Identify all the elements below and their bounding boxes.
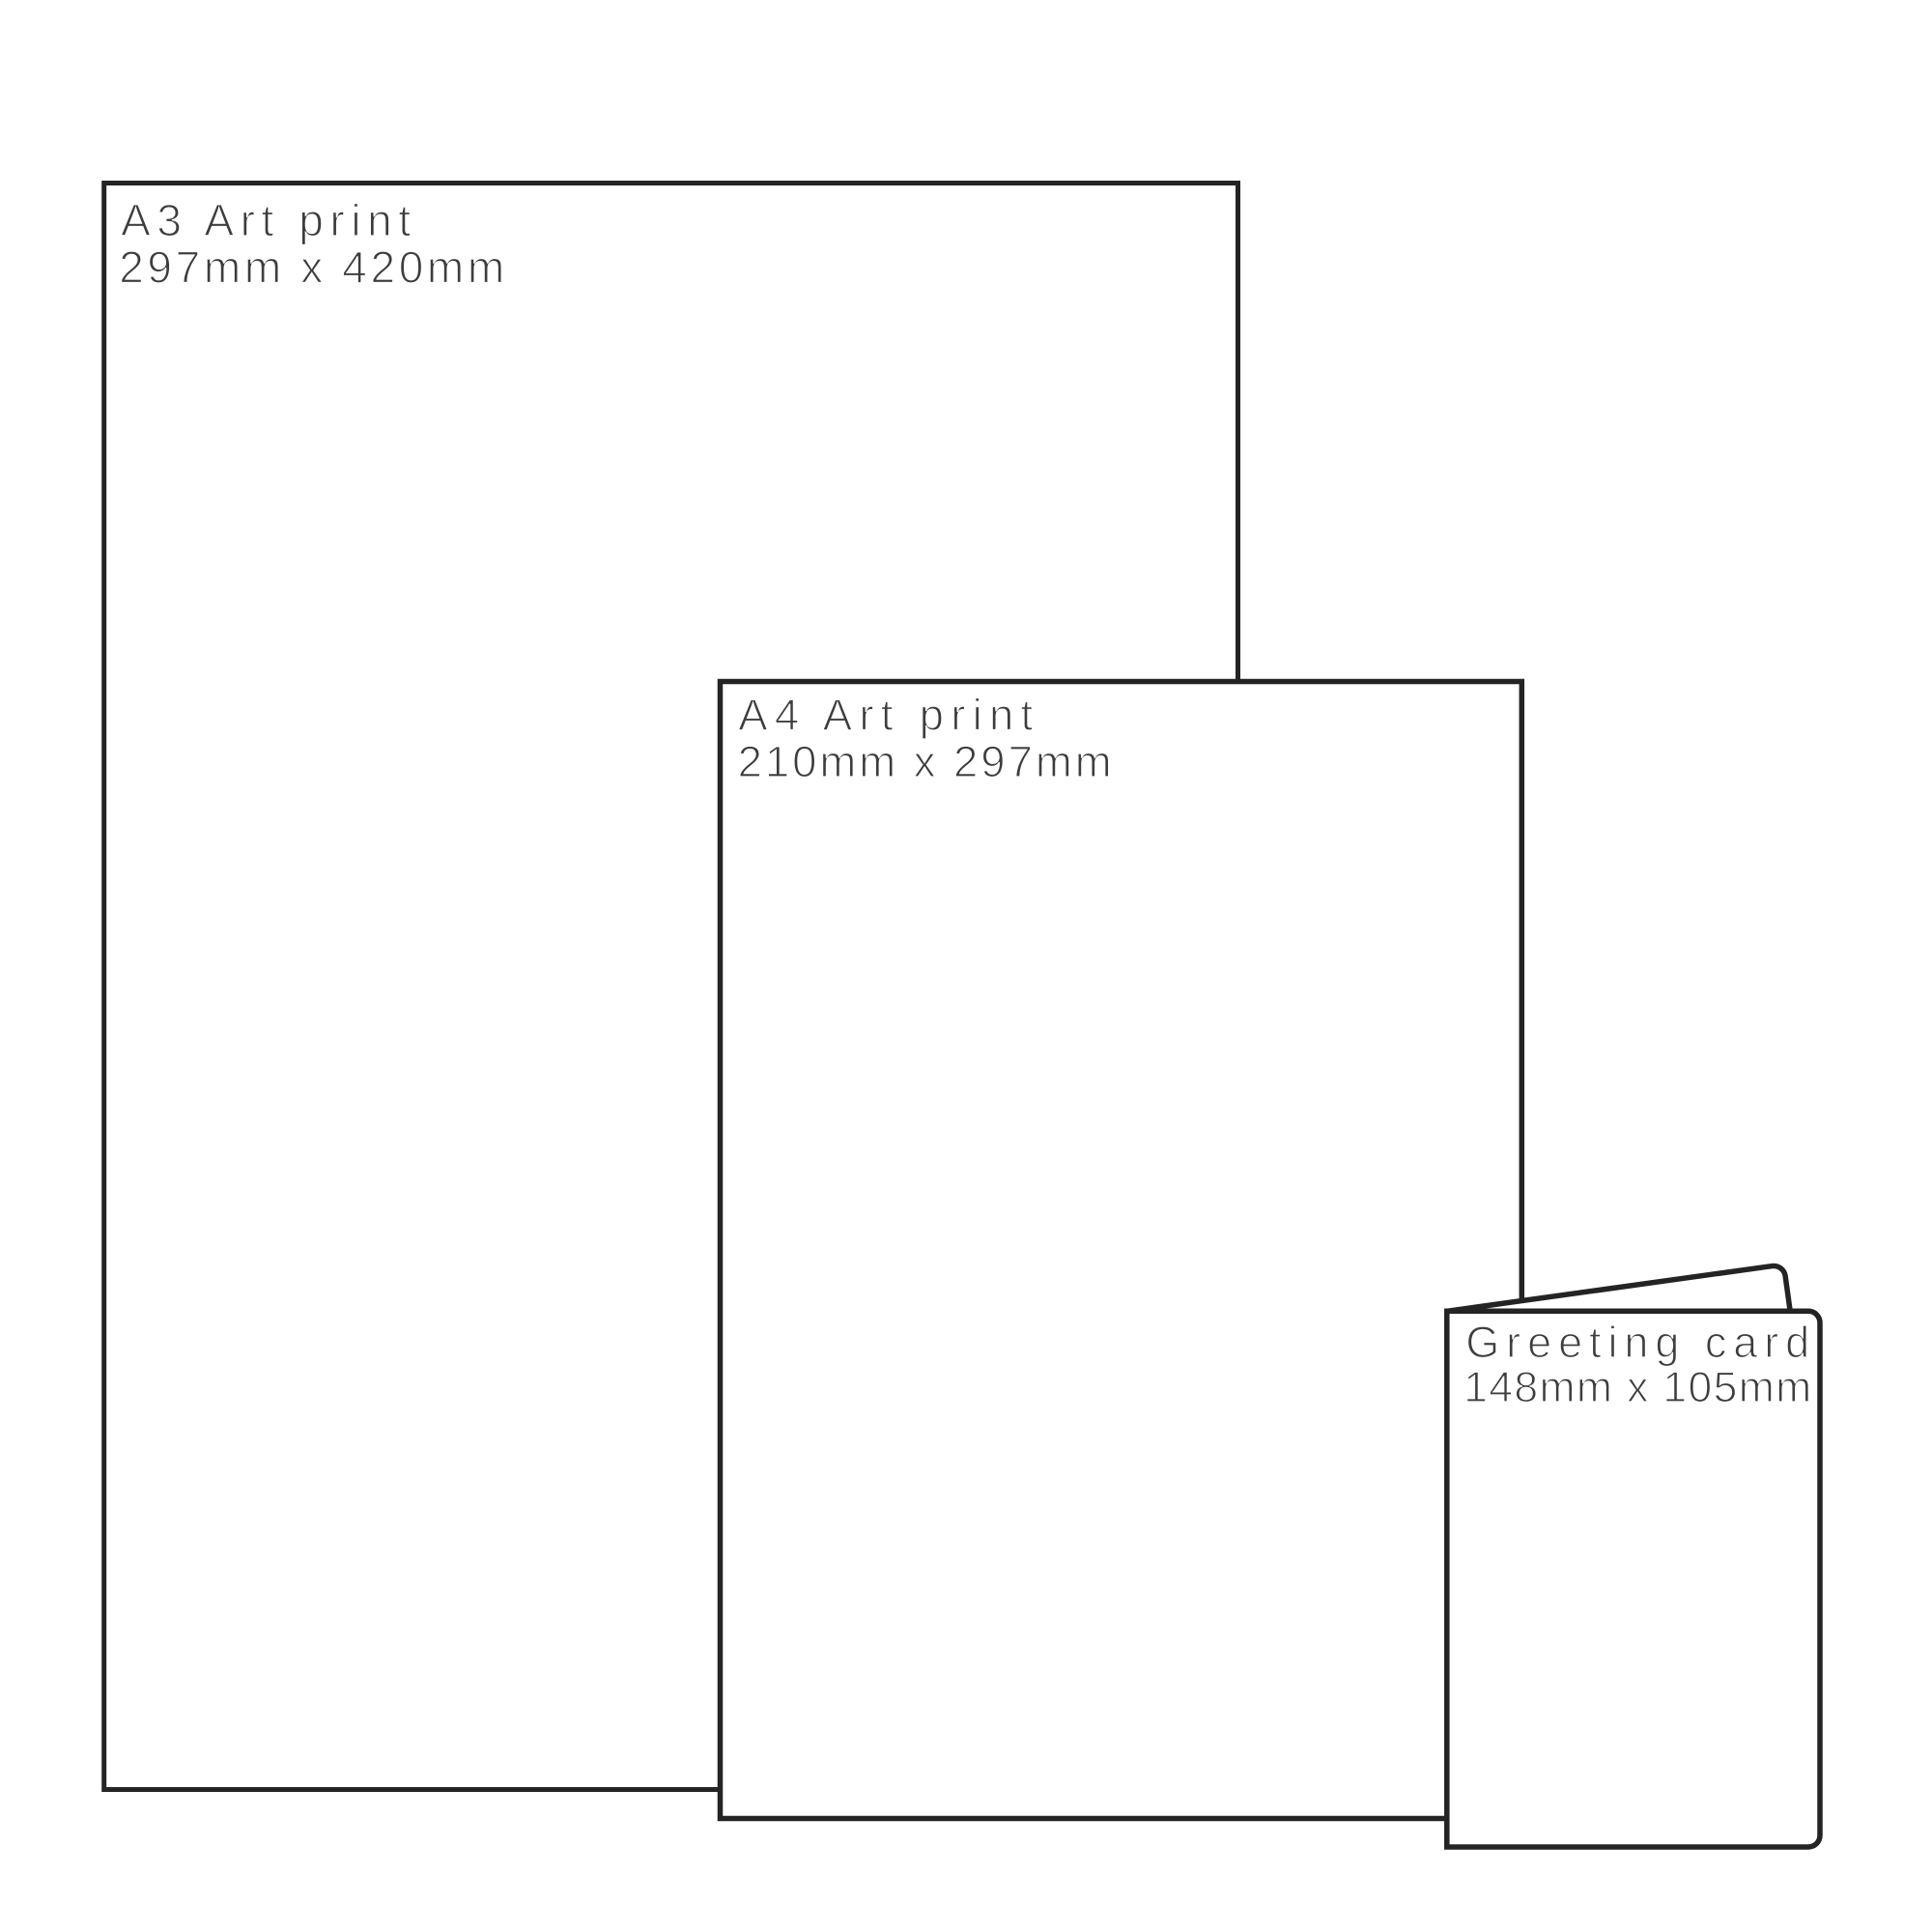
svg-text:148mm x 105mm: 148mm x 105mm [1463,1364,1811,1411]
svg-text:210mm x 297mm: 210mm x 297mm [738,737,1112,786]
svg-text:A4 Art print: A4 Art print [738,691,1033,740]
svg-text:A3 Art print: A3 Art print [121,195,411,245]
svg-text:297mm x 420mm: 297mm x 420mm [119,242,504,293]
